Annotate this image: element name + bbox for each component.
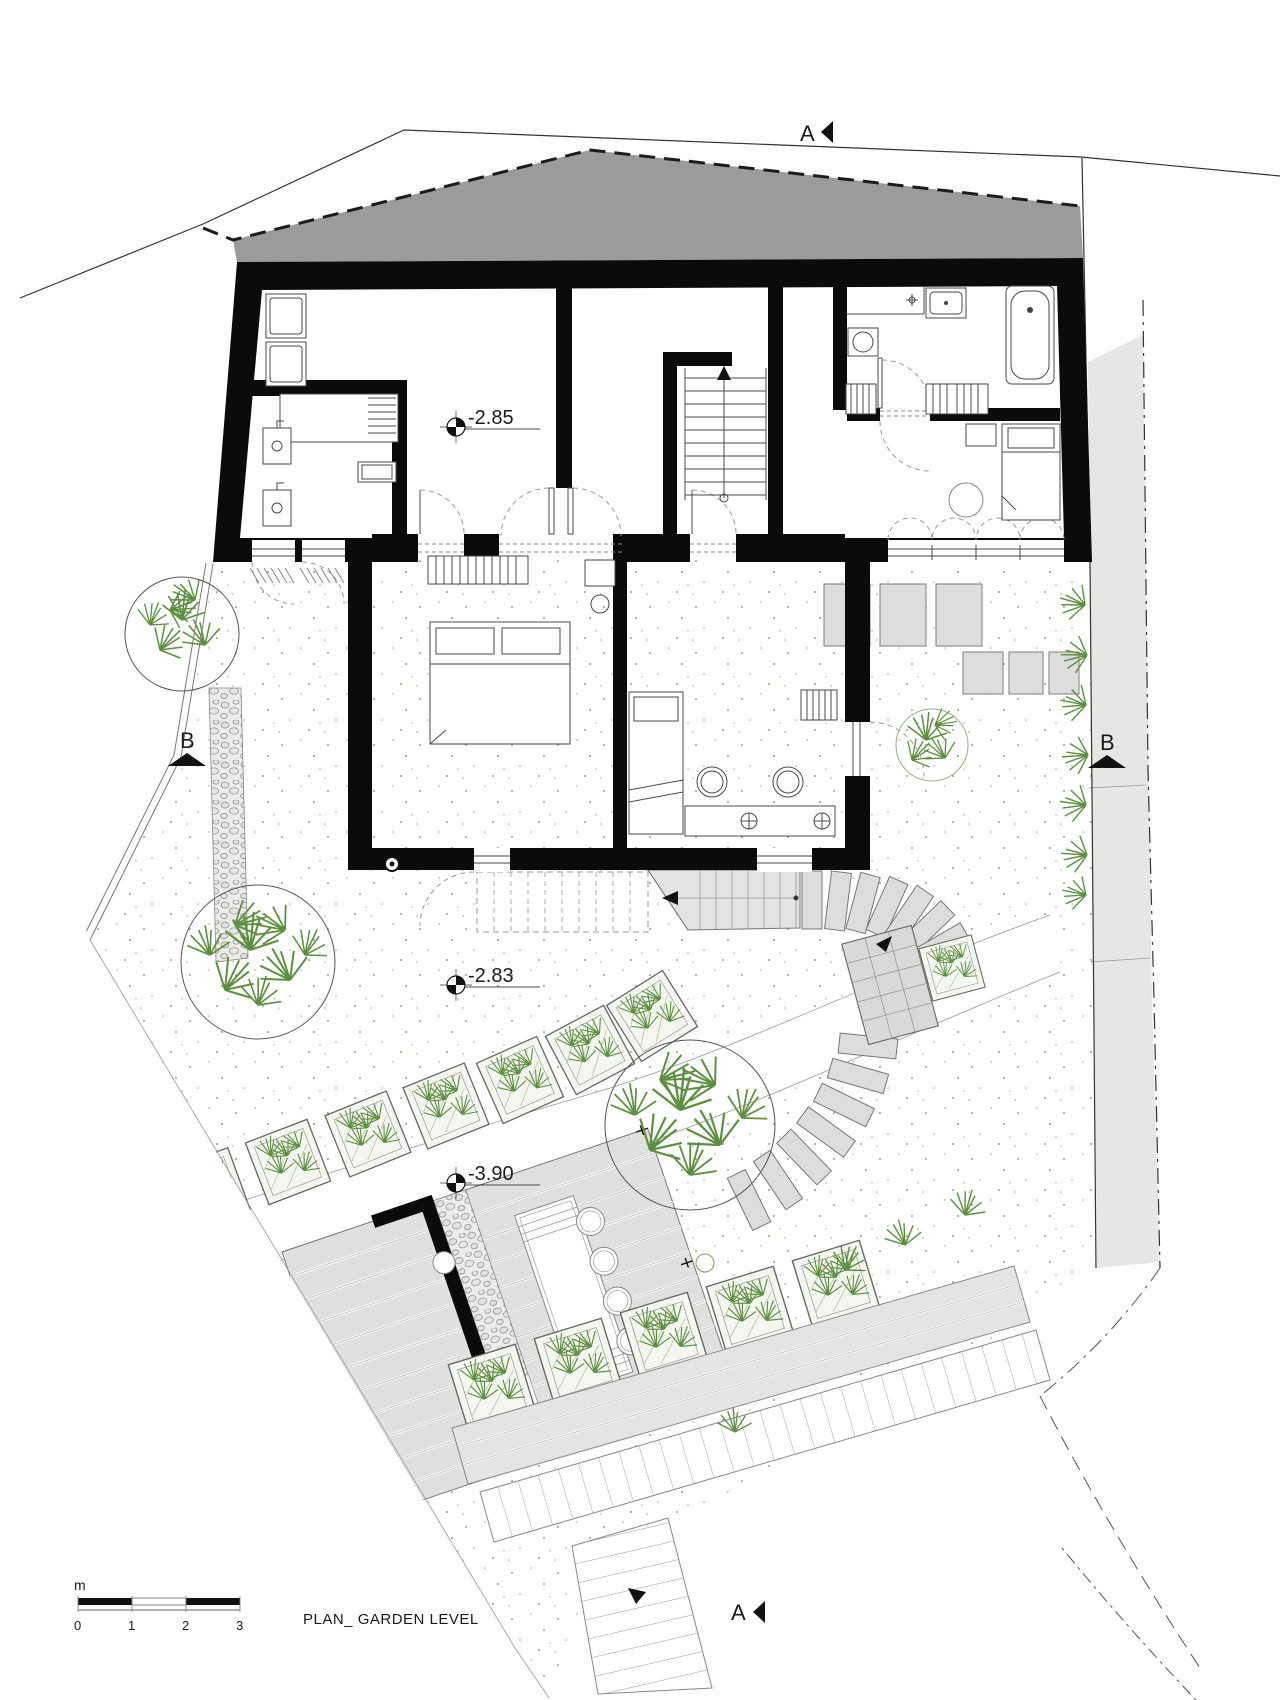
level-value: -2.85 [468, 407, 514, 429]
neighbour-path-strip [1088, 300, 1160, 1268]
section-marker-a-bottom: A [731, 1600, 765, 1625]
sink [263, 490, 291, 526]
floor-plan-sheet: -2.85 -2.83 -3.90 A A B B m 0 1 2 3 PLAN… [0, 0, 1280, 1700]
bottom-steps-wedge [572, 1518, 712, 1694]
section-letter: A [731, 1600, 746, 1625]
counter [280, 394, 398, 442]
sink [263, 428, 291, 464]
utility-room-fixtures [263, 294, 398, 526]
scale-tick-3: 3 [236, 1618, 243, 1633]
vanity-counter [685, 806, 835, 836]
level-marker-hall: -2.85 [440, 407, 540, 443]
section-marker-a-top: A [800, 121, 833, 146]
scale-tick-1: 1 [128, 1618, 135, 1633]
double-bed [430, 622, 570, 744]
single-bed [629, 692, 683, 834]
scale-tick-0: 0 [74, 1618, 81, 1633]
plan-title: PLAN_ GARDEN LEVEL [303, 1611, 479, 1628]
rug [949, 483, 983, 517]
nightstand [966, 424, 996, 446]
section-arrow-icon [753, 1601, 765, 1623]
section-letter: A [800, 121, 815, 146]
scale-tick-2: 2 [182, 1618, 189, 1633]
scale-unit-label: m [74, 1577, 86, 1593]
bed [1002, 424, 1060, 520]
timber-deck-dashed [477, 872, 648, 932]
section-arrow-icon [821, 121, 833, 143]
section-letter: B [180, 728, 195, 753]
wardrobe [428, 556, 528, 584]
site-boundary-dashed [1040, 1268, 1200, 1700]
section-letter: B [1100, 730, 1115, 755]
bathtub [1006, 286, 1054, 384]
roof-above [203, 150, 1083, 262]
stair-arrow-icon [717, 366, 731, 380]
level-value: -3.90 [468, 1163, 514, 1185]
nightstand [585, 560, 615, 586]
staircase [685, 366, 766, 502]
bedroom-right-fixtures [949, 424, 1060, 520]
bathroom-fixtures [846, 286, 1054, 414]
level-value: -2.83 [468, 965, 514, 987]
